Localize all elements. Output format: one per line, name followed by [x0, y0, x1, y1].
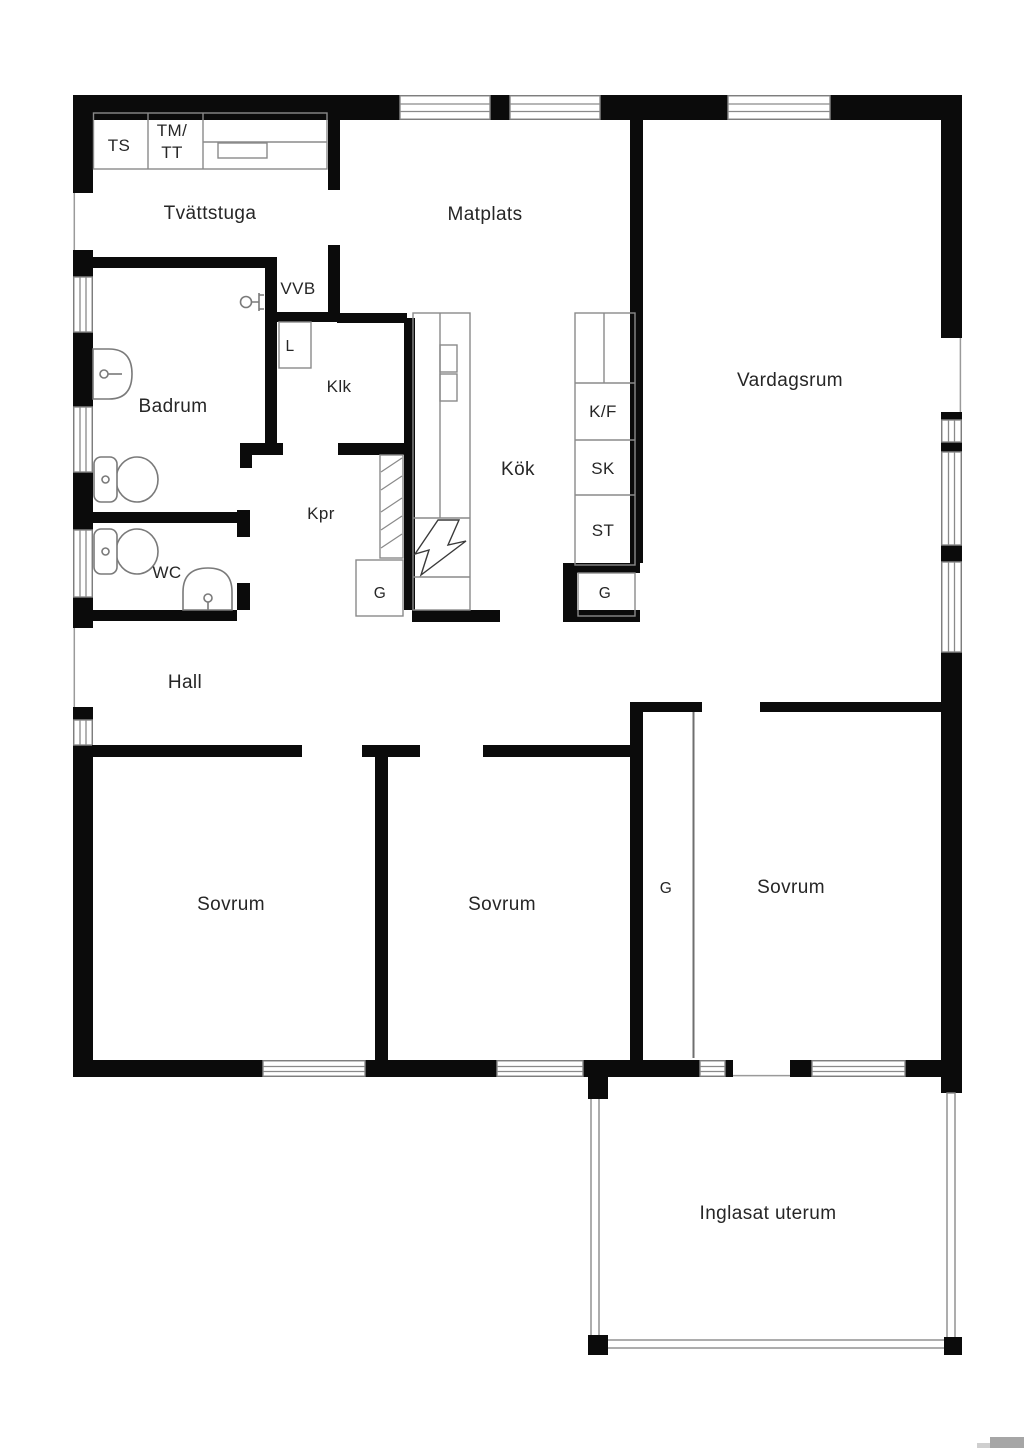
- wall-segment: [760, 702, 942, 712]
- window: [263, 1061, 365, 1076]
- watermark-shape: [990, 1437, 1024, 1448]
- floor-plan-svg: TS TM/ TT Tvättstuga Matplats VVB L Klk …: [0, 0, 1024, 1448]
- door-opening: [733, 1060, 790, 1077]
- room-label-inglasat-uterum: Inglasat uterum: [700, 1203, 837, 1224]
- wall-segment: [563, 563, 577, 616]
- wall-segment: [93, 257, 277, 268]
- wall-segment: [265, 257, 277, 443]
- room-label-sovrum-1: Sovrum: [197, 894, 265, 915]
- door-opening: [73, 628, 94, 707]
- glass-wall: [947, 1093, 955, 1339]
- window: [510, 96, 600, 119]
- window: [400, 96, 490, 119]
- floor-plan-page: TS TM/ TT Tvättstuga Matplats VVB L Klk …: [0, 0, 1024, 1448]
- washbasin-icon: [93, 349, 132, 399]
- room-label-hall: Hall: [168, 672, 202, 693]
- window: [942, 452, 961, 545]
- corner-basin-icon: [183, 568, 232, 610]
- laundry-sink: [218, 143, 267, 158]
- label-sk: SK: [591, 459, 615, 478]
- wall-segment: [630, 702, 643, 1077]
- wardrobe-hatch-icon: [380, 455, 403, 558]
- label-tm: TM/: [157, 121, 187, 140]
- label-tt: TT: [161, 143, 183, 162]
- wall-segment: [483, 745, 633, 757]
- post: [588, 1077, 608, 1099]
- wall-segment: [328, 245, 340, 322]
- label-ts: TS: [108, 136, 131, 155]
- label-g-bedroom: G: [660, 880, 672, 897]
- wall-segment: [92, 745, 302, 757]
- wall-segment: [362, 745, 420, 757]
- wall-segment: [277, 312, 340, 322]
- wall-segment: [240, 443, 252, 468]
- post: [588, 1335, 608, 1355]
- stove-icon: [415, 520, 466, 575]
- room-label-matplats: Matplats: [447, 204, 522, 225]
- window: [728, 96, 830, 119]
- watermark-shape: [977, 1443, 990, 1448]
- watermark: [977, 1437, 1024, 1448]
- window: [74, 530, 92, 597]
- room-labels: TS TM/ TT Tvättstuga Matplats VVB L Klk …: [108, 121, 843, 1224]
- room-label-klk: Klk: [327, 377, 352, 396]
- label-l: L: [285, 338, 294, 355]
- wall-segment: [328, 112, 340, 190]
- wall-segment: [93, 610, 237, 621]
- kitchen-counter: [413, 313, 470, 610]
- wall-segment: [237, 510, 250, 537]
- label-kf: K/F: [589, 402, 617, 421]
- room-label-wc: WC: [152, 563, 181, 582]
- window: [497, 1061, 583, 1076]
- room-label-badrum: Badrum: [139, 396, 208, 417]
- wall-segment: [338, 443, 415, 455]
- post: [944, 1337, 962, 1355]
- wall-segment: [237, 583, 250, 610]
- label-st: ST: [592, 521, 615, 540]
- tap-icon: [241, 293, 265, 311]
- glass-wall: [599, 1340, 947, 1348]
- label-g-kitchen-left: G: [374, 585, 386, 602]
- l-closet-box: [279, 322, 311, 368]
- window: [812, 1061, 905, 1076]
- door-opening: [941, 338, 962, 412]
- wall-segment: [337, 313, 407, 323]
- label-g-kitchen-right: G: [599, 585, 611, 602]
- room-label-sovrum-2: Sovrum: [468, 894, 536, 915]
- wall-segment: [93, 512, 237, 523]
- room-label-kok: Kök: [501, 459, 535, 480]
- room-label-tvattstuga: Tvättstuga: [164, 203, 257, 224]
- label-vvb: VVB: [280, 279, 315, 298]
- toilet-icon: [94, 529, 158, 574]
- window: [74, 407, 92, 472]
- window: [74, 720, 92, 745]
- window: [74, 277, 92, 332]
- toilet-icon: [94, 457, 158, 502]
- wall-segment: [630, 702, 702, 712]
- window: [942, 420, 961, 442]
- room-label-kpr: Kpr: [307, 504, 335, 523]
- wall-segment: [412, 610, 500, 622]
- window: [942, 562, 961, 652]
- room-label-vardagsrum: Vardagsrum: [737, 370, 843, 391]
- glass-wall: [591, 1097, 599, 1337]
- room-label-sovrum-3: Sovrum: [757, 877, 825, 898]
- window: [700, 1061, 725, 1076]
- door-opening: [73, 193, 94, 250]
- wall-segment: [375, 752, 388, 1060]
